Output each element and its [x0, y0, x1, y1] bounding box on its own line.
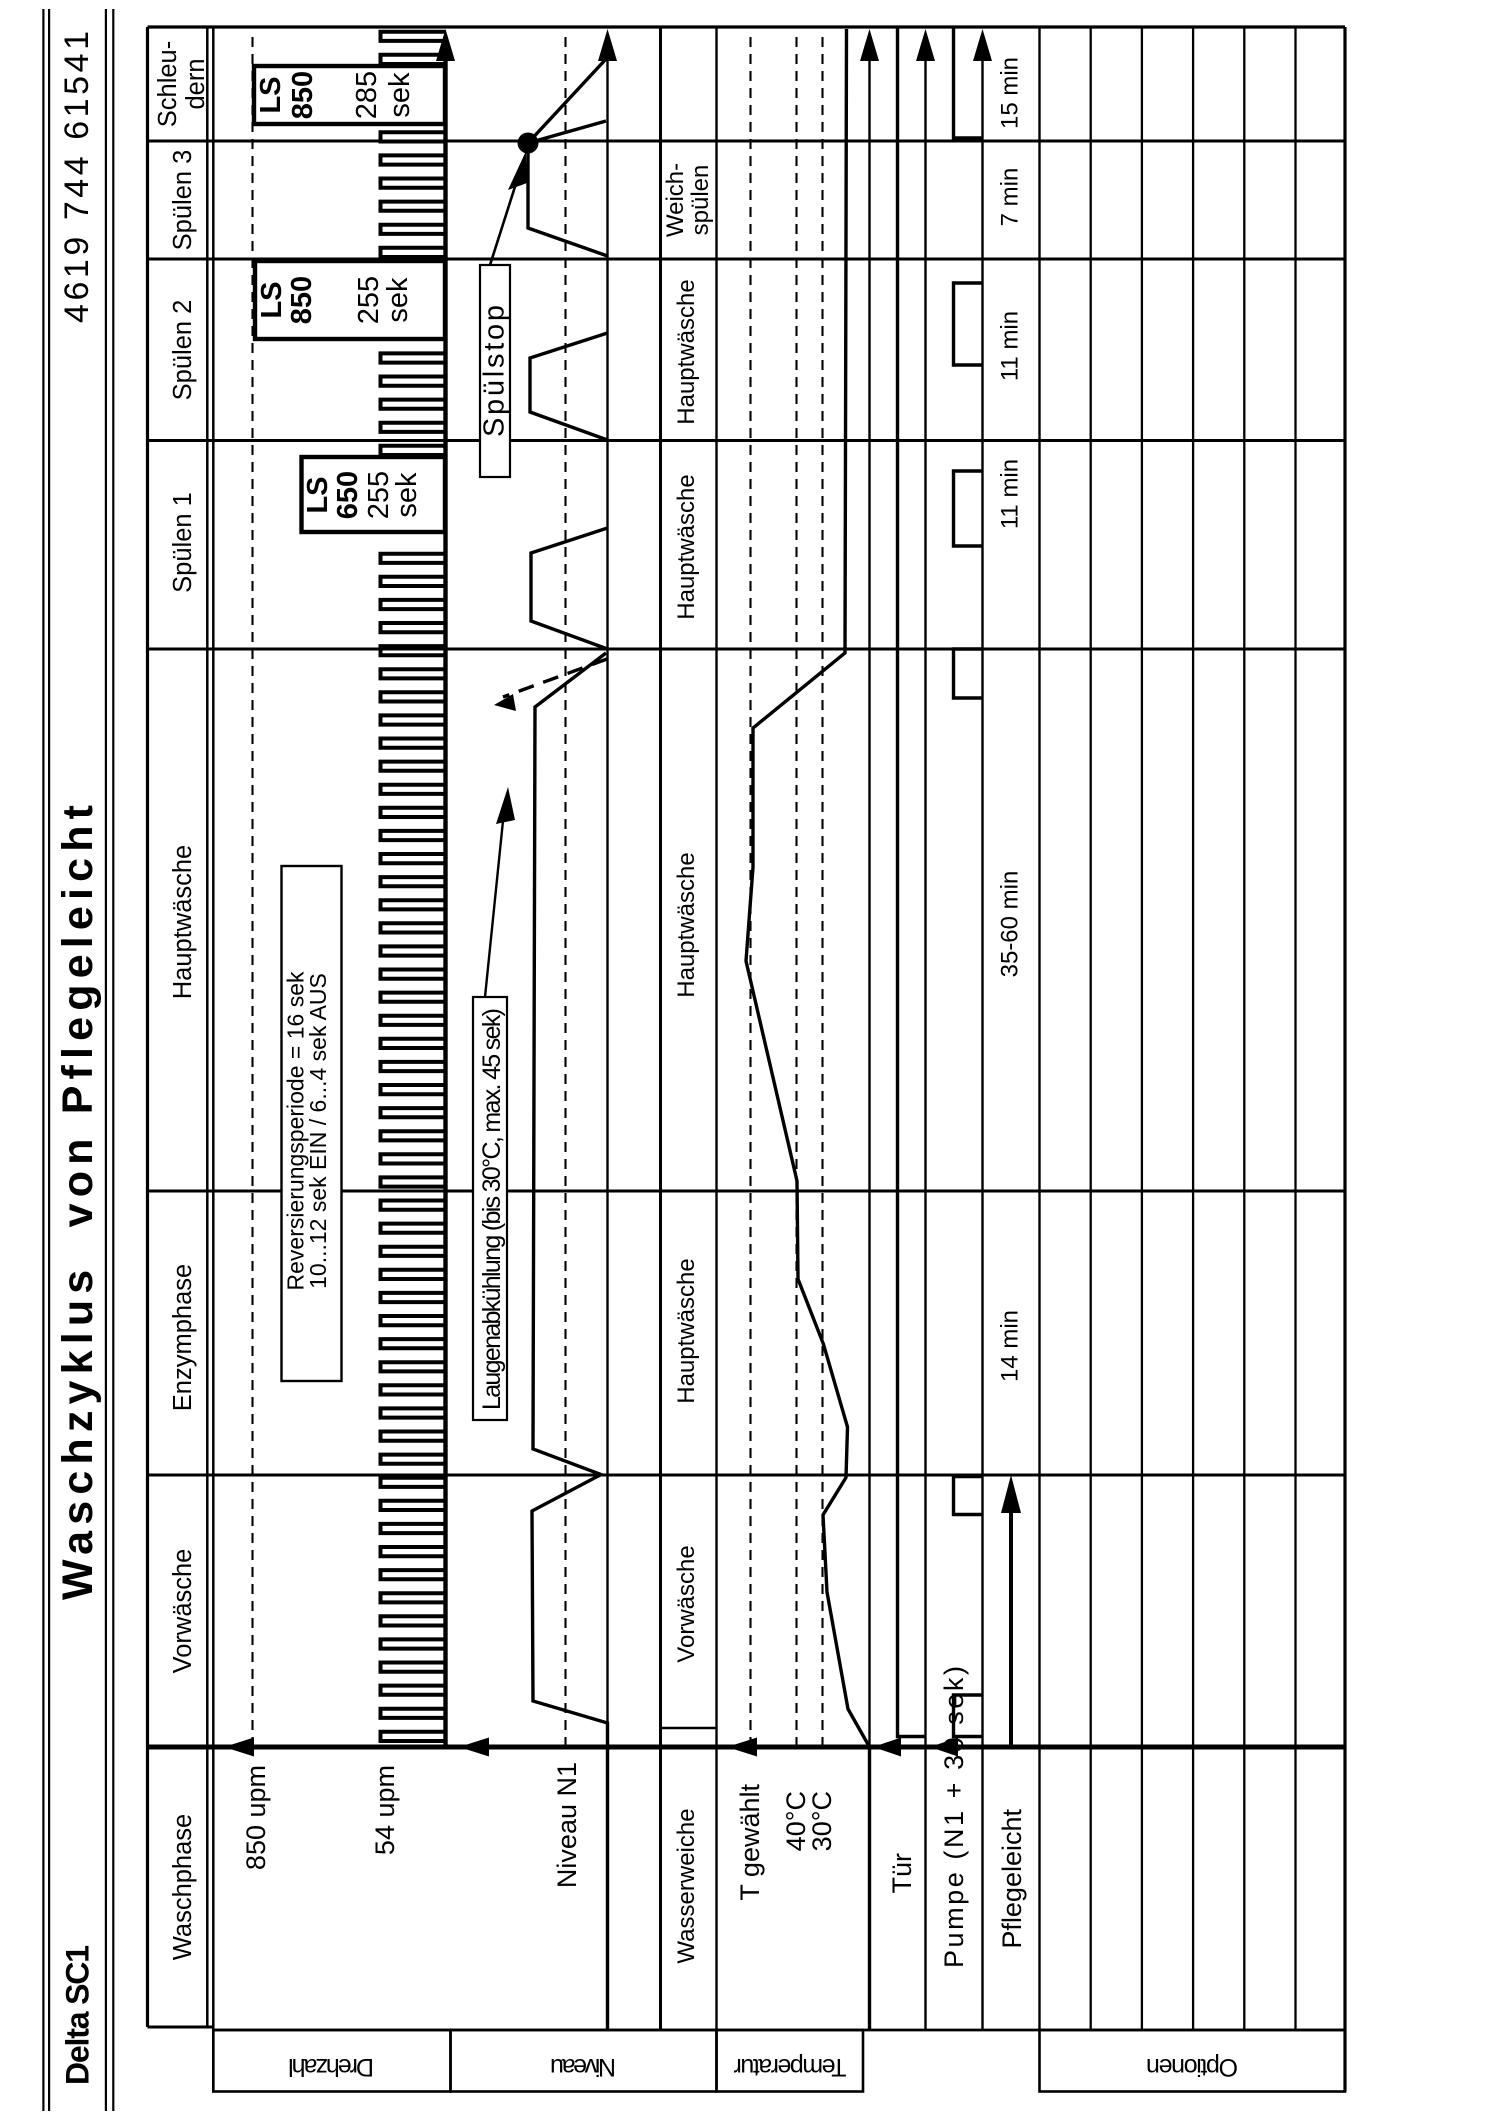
svg-text:Spülen 1: Spülen 1: [169, 492, 197, 593]
svg-text:T gewählt: T gewählt: [735, 1784, 765, 1901]
svg-text:Pflegeleicht: Pflegeleicht: [997, 1809, 1027, 1949]
svg-text:spülen: spülen: [687, 165, 714, 236]
svg-text:850 upm: 850 upm: [241, 1765, 271, 1870]
svg-text:Delta SC1: Delta SC1: [60, 1945, 96, 2085]
svg-text:LS: LS: [256, 281, 288, 318]
svg-text:Hauptwäsche: Hauptwäsche: [673, 474, 700, 619]
svg-text:Tür: Tür: [887, 1853, 917, 1894]
svg-text:850: 850: [286, 276, 318, 324]
svg-text:Enzymphase: Enzymphase: [169, 1264, 197, 1411]
svg-text:dern: dern: [182, 58, 210, 109]
svg-text:sek: sek: [391, 472, 423, 518]
svg-text:850: 850: [287, 71, 319, 119]
svg-text:sek: sek: [384, 72, 416, 118]
svg-text:54 upm: 54 upm: [370, 1765, 400, 1855]
svg-text:Wasserweiche: Wasserweiche: [673, 1808, 700, 1963]
svg-text:Niveau N1: Niveau N1: [552, 1762, 582, 1888]
svg-text:285: 285: [351, 71, 383, 119]
svg-text:Niveau: Niveau: [550, 2053, 616, 2081]
svg-text:Hauptwäsche: Hauptwäsche: [673, 852, 700, 997]
svg-text:Optionen: Optionen: [1146, 2053, 1238, 2081]
svg-text:sek: sek: [382, 277, 414, 323]
svg-text:255: 255: [353, 276, 385, 324]
svg-text:Vorwäsche: Vorwäsche: [169, 1549, 197, 1674]
svg-text:30°C: 30°C: [807, 1791, 837, 1851]
svg-text:Hauptwäsche: Hauptwäsche: [673, 279, 700, 424]
svg-text:LS: LS: [302, 476, 334, 513]
svg-text:Drehzahl: Drehzahl: [288, 2053, 374, 2081]
svg-text:35-60 min: 35-60 min: [997, 871, 1024, 978]
svg-text:Weich-: Weich-: [662, 163, 689, 237]
svg-text:Laugenabkühlung (bis 30°C, max: Laugenabkühlung (bis 30°C, max. 45 sek): [478, 1008, 506, 1410]
svg-text:650: 650: [332, 471, 364, 519]
svg-text:11 min: 11 min: [997, 459, 1024, 529]
svg-text:LS: LS: [255, 76, 287, 113]
svg-text:10...12 sek EIN / 6...4 sek AU: 10...12 sek EIN / 6...4 sek AUS: [305, 973, 331, 1289]
svg-text:15 min: 15 min: [997, 57, 1024, 129]
svg-text:Spülen 3: Spülen 3: [169, 150, 197, 251]
svg-text:Waschphase: Waschphase: [169, 1814, 197, 1960]
svg-text:Hauptwäsche: Hauptwäsche: [673, 1258, 700, 1403]
svg-text:Temperatur: Temperatur: [734, 2053, 847, 2081]
svg-text:Schleu-: Schleu-: [154, 41, 182, 127]
svg-text:Spülen 2: Spülen 2: [169, 300, 197, 401]
svg-text:Hauptwäsche: Hauptwäsche: [169, 845, 197, 1000]
svg-text:11 min: 11 min: [997, 311, 1024, 381]
svg-text:Vorwäsche: Vorwäsche: [673, 1545, 700, 1662]
svg-text:7 min: 7 min: [997, 168, 1024, 227]
svg-text:14 min: 14 min: [997, 1310, 1024, 1382]
